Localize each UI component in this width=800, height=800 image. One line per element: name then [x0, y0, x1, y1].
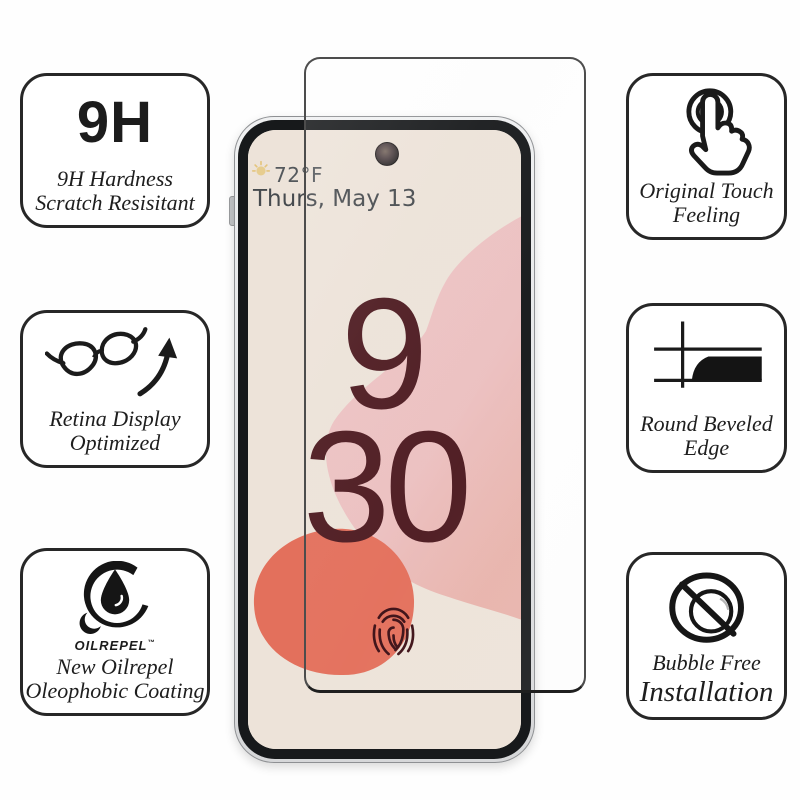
- feature-line: Original Touch: [639, 179, 773, 204]
- tempered-glass-overlay: [304, 57, 586, 693]
- glasses-icon: [45, 323, 185, 405]
- feature-box-touch: Original Touch Feeling: [626, 73, 787, 240]
- feature-line: 9H Hardness: [57, 167, 173, 192]
- feature-caption: Bubble Free Installation: [640, 651, 774, 708]
- brand-text: OILREPEL: [74, 638, 147, 653]
- feature-caption: Round Beveled Edge: [640, 412, 773, 461]
- feature-line: Oleophobic Coating: [25, 679, 204, 704]
- beveled-edge-icon: [646, 316, 768, 408]
- no-bubbles-icon: [659, 565, 755, 651]
- feature-line: Bubble Free: [652, 651, 761, 676]
- feature-caption: 9H Hardness Scratch Resisitant: [35, 167, 194, 216]
- product-infographic: 9H 9H Hardness Scratch Resisitant Retina…: [0, 0, 800, 800]
- feature-box-oilrepel: OILREPEL™ New Oilrepel Oleophobic Coatin…: [20, 548, 210, 716]
- feature-box-retina: Retina Display Optimized: [20, 310, 210, 468]
- feature-line: Optimized: [70, 431, 160, 456]
- feature-line: Edge: [684, 436, 729, 461]
- weather-sun-icon: [250, 159, 272, 181]
- feature-line: New Oilrepel: [56, 655, 173, 680]
- feature-line: Installation: [640, 676, 774, 708]
- arrow-icon: [140, 354, 168, 394]
- trademark-symbol: ™: [148, 640, 156, 647]
- feature-box-hardness: 9H 9H Hardness Scratch Resisitant: [20, 73, 210, 228]
- feature-caption: New Oilrepel Oleophobic Coating: [25, 655, 204, 704]
- feature-line: Scratch Resisitant: [35, 191, 194, 216]
- oilrepel-brand-label: OILREPEL™: [74, 638, 155, 653]
- touch-icon: [655, 86, 759, 179]
- oil-drop-icon: [67, 561, 163, 641]
- feature-box-bubble-free: Bubble Free Installation: [626, 552, 787, 720]
- feature-caption: Original Touch Feeling: [639, 179, 773, 228]
- feature-box-bevel: Round Beveled Edge: [626, 303, 787, 473]
- feature-line: Retina Display: [49, 407, 180, 432]
- feature-line: Feeling: [673, 203, 740, 228]
- hardness-9h-label: 9H: [77, 94, 153, 152]
- feature-caption: Retina Display Optimized: [49, 407, 180, 456]
- feature-line: Round Beveled: [640, 412, 773, 437]
